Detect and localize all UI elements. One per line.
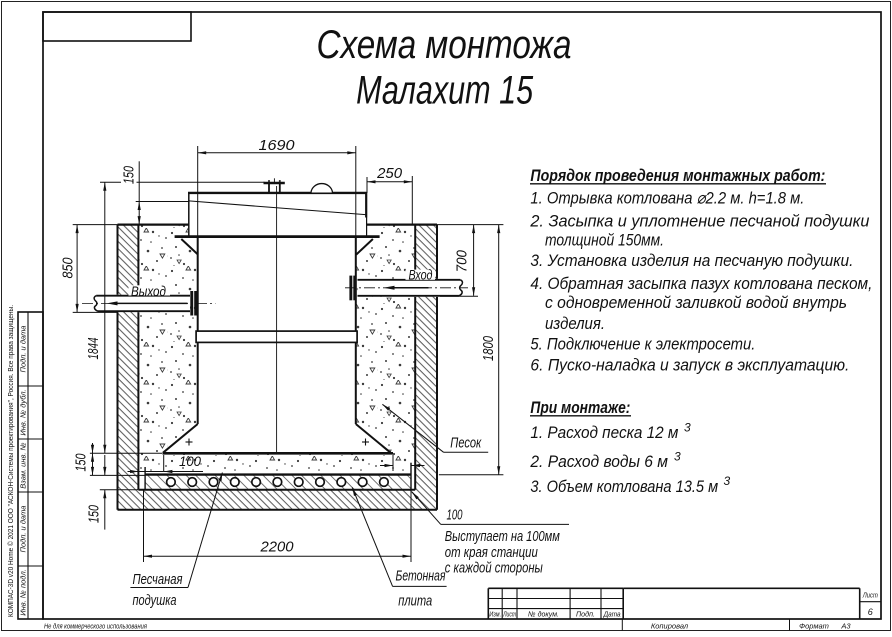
svg-text:от края станции: от края станции	[445, 545, 538, 561]
svg-text:Бетонная: Бетонная	[396, 568, 446, 584]
svg-text:3. Установка изделия на песчан: 3. Установка изделия на песчаную подушки…	[530, 251, 853, 270]
svg-text:1844: 1844	[86, 338, 102, 360]
svg-text:Копировал: Копировал	[651, 622, 689, 631]
svg-text:2200: 2200	[259, 540, 293, 556]
svg-text:подушка: подушка	[133, 593, 177, 609]
svg-text:Песок: Песок	[450, 435, 482, 451]
svg-text:2. Расход воды 6 м: 2. Расход воды 6 м	[529, 452, 668, 471]
svg-text:3: 3	[684, 421, 691, 435]
svg-text:100: 100	[179, 453, 201, 469]
svg-text:Лист: Лист	[502, 609, 516, 618]
svg-text:6. Пуско-наладка и запуск в эк: 6. Пуско-наладка и запуск в эксплуатацию…	[530, 356, 849, 375]
svg-text:Малахит 15: Малахит 15	[356, 69, 534, 113]
svg-text:850: 850	[61, 258, 77, 279]
svg-text:с одновременной заливкой водой: с одновременной заливкой водой внутрь	[545, 293, 847, 312]
svg-text:5. Подключение к электросети.: 5. Подключение к электросети.	[530, 335, 755, 354]
svg-text:Схема монтожа: Схема монтожа	[317, 23, 572, 67]
svg-text:2. Засыпка и уплотнение песчан: 2. Засыпка и уплотнение песчаной подушки	[529, 212, 869, 231]
svg-text:Инв. № подл.: Инв. № подл.	[19, 569, 28, 616]
svg-text:150: 150	[87, 505, 103, 523]
svg-text:150: 150	[74, 454, 90, 472]
svg-text:Подп.: Подп.	[576, 609, 595, 618]
svg-text:3: 3	[724, 474, 731, 488]
svg-text:При монтаже:: При монтаже:	[530, 398, 630, 417]
svg-text:700: 700	[455, 250, 471, 272]
svg-text:1. Расход песка 12 м: 1. Расход песка 12 м	[530, 423, 678, 442]
svg-text:№ докум.: № докум.	[528, 609, 559, 618]
svg-text:КОМПАС-3D v20 Home © 2021 ООО: КОМПАС-3D v20 Home © 2021 ООО "АСКОН-Сис…	[7, 305, 15, 617]
svg-text:Подп. и дата: Подп. и дата	[19, 506, 28, 553]
svg-text:150: 150	[122, 166, 138, 184]
svg-text:1. Отрывка котлована ⌀2.2 м. h: 1. Отрывка котлована ⌀2.2 м. h=1.8 м.	[530, 189, 804, 208]
svg-text:изделия.: изделия.	[545, 314, 605, 333]
svg-text:Вход: Вход	[409, 267, 433, 282]
svg-text:Лист: Лист	[862, 591, 878, 600]
svg-text:с каждой стороны: с каждой стороны	[445, 560, 543, 576]
svg-text:4. Обратная засыпка пазух котл: 4. Обратная засыпка пазух котлована песк…	[530, 274, 872, 293]
svg-text:Дата: Дата	[603, 609, 621, 618]
svg-text:6: 6	[868, 607, 873, 617]
svg-text:Инв. № дубл.: Инв. № дубл.	[19, 389, 28, 435]
svg-text:Изм.: Изм.	[489, 609, 501, 618]
svg-text:3. Объем котлована 13.5 м: 3. Объем котлована 13.5 м	[530, 477, 718, 496]
svg-text:Выход: Выход	[131, 284, 166, 299]
svg-text:плита: плита	[398, 594, 432, 610]
svg-text:1800: 1800	[481, 336, 497, 361]
svg-text:100: 100	[447, 507, 463, 523]
svg-text:Не для коммерческого использов: Не для коммерческого использования	[44, 623, 147, 631]
svg-text:1690: 1690	[259, 138, 295, 154]
svg-text:3: 3	[674, 450, 681, 464]
svg-text:250: 250	[376, 166, 402, 182]
svg-text:толщиной 150мм.: толщиной 150мм.	[545, 230, 664, 249]
svg-text:Взам. инв. №: Взам. инв. №	[19, 442, 28, 488]
svg-text:Порядок проведения монтажных р: Порядок проведения монтажных работ:	[530, 166, 825, 185]
svg-text:Песчаная: Песчаная	[133, 572, 183, 588]
svg-text:А3: А3	[840, 622, 851, 631]
svg-text:Подп. и дата: Подп. и дата	[19, 326, 28, 373]
svg-text:Формат: Формат	[799, 622, 829, 631]
svg-text:Выступает на 100мм: Выступает на 100мм	[445, 529, 560, 545]
